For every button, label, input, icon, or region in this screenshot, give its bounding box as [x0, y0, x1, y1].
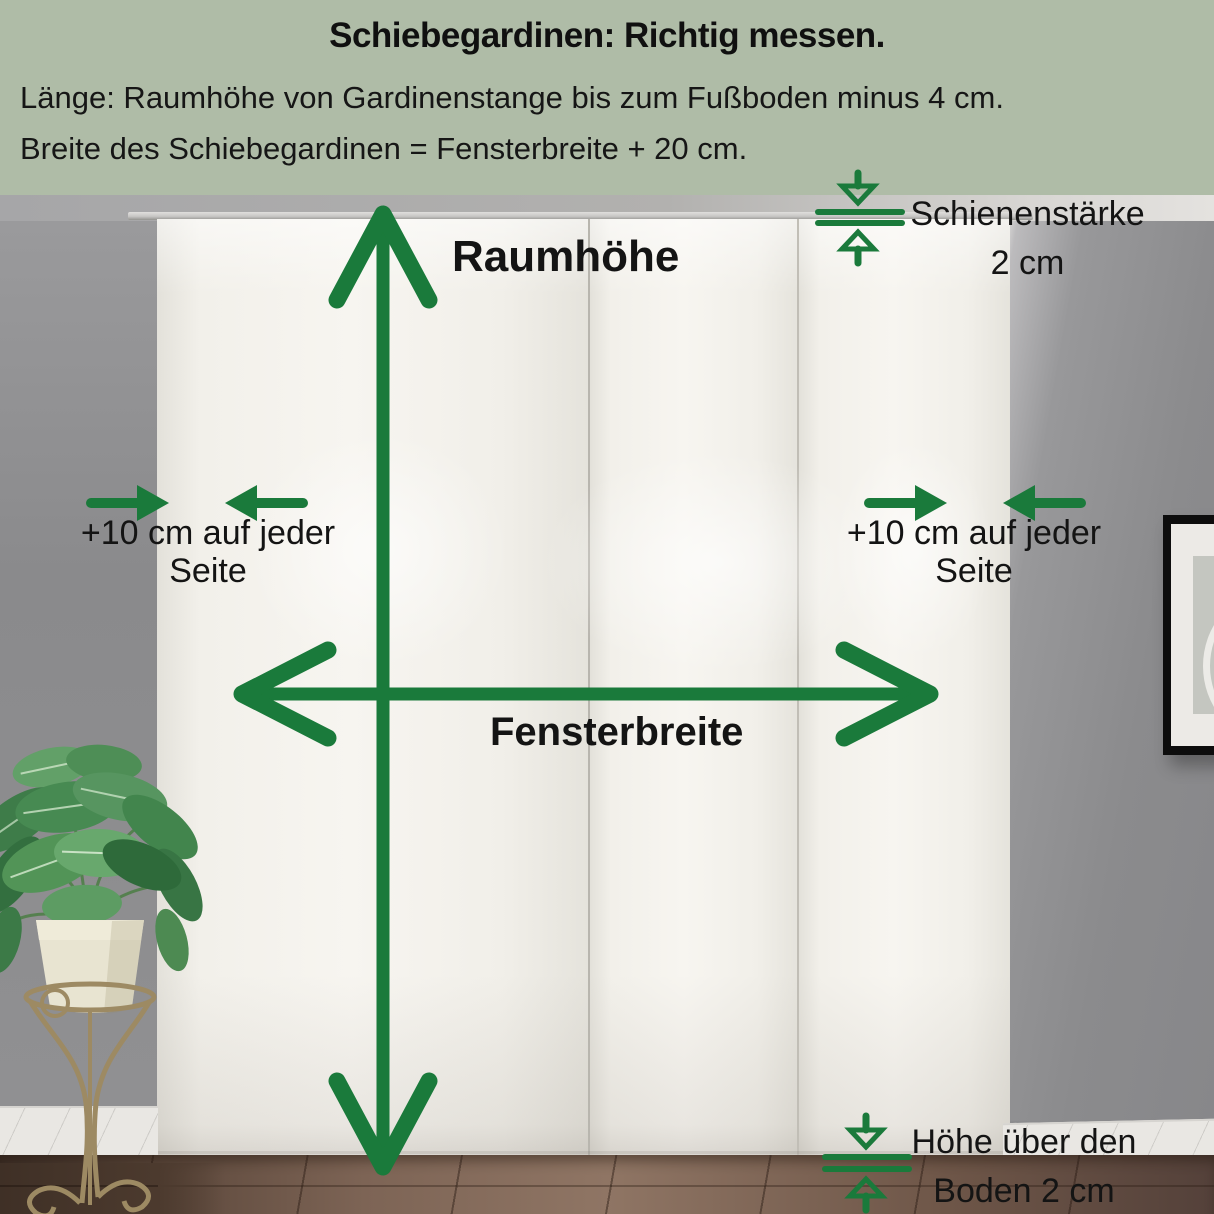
measuring-guide-image: Schiebegardinen: Richtig messen. Länge: … — [0, 0, 1214, 1214]
rail-thickness-label: Schienenstärke 2 cm — [900, 190, 1155, 288]
potted-plant-icon — [0, 735, 202, 1214]
plant-stand — [26, 984, 154, 1214]
width-instruction: Breite des Schiebegardinen = Fensterbrei… — [20, 131, 747, 167]
side-offset-label-right: +10 cm auf jeder Seite — [828, 514, 1120, 590]
window-width-label: Fensterbreite — [490, 710, 743, 755]
frame-mat — [1171, 524, 1214, 746]
page-title: Schiebegardinen: Richtig messen. — [0, 16, 1214, 56]
side-offset-label-left: +10 cm auf jeder Seite — [62, 514, 354, 590]
frame-print — [1193, 556, 1214, 714]
length-instruction: Länge: Raumhöhe von Gardinenstange bis z… — [20, 80, 1004, 116]
floor-gap-label: Höhe über den Boden 2 cm — [878, 1118, 1170, 1214]
room-height-label: Raumhöhe — [452, 232, 679, 282]
picture-frame — [1163, 515, 1214, 755]
rail-thickness-gauge-icon — [812, 170, 908, 266]
plant-pot — [36, 920, 144, 1013]
header-band: Schiebegardinen: Richtig messen. Länge: … — [0, 0, 1214, 195]
